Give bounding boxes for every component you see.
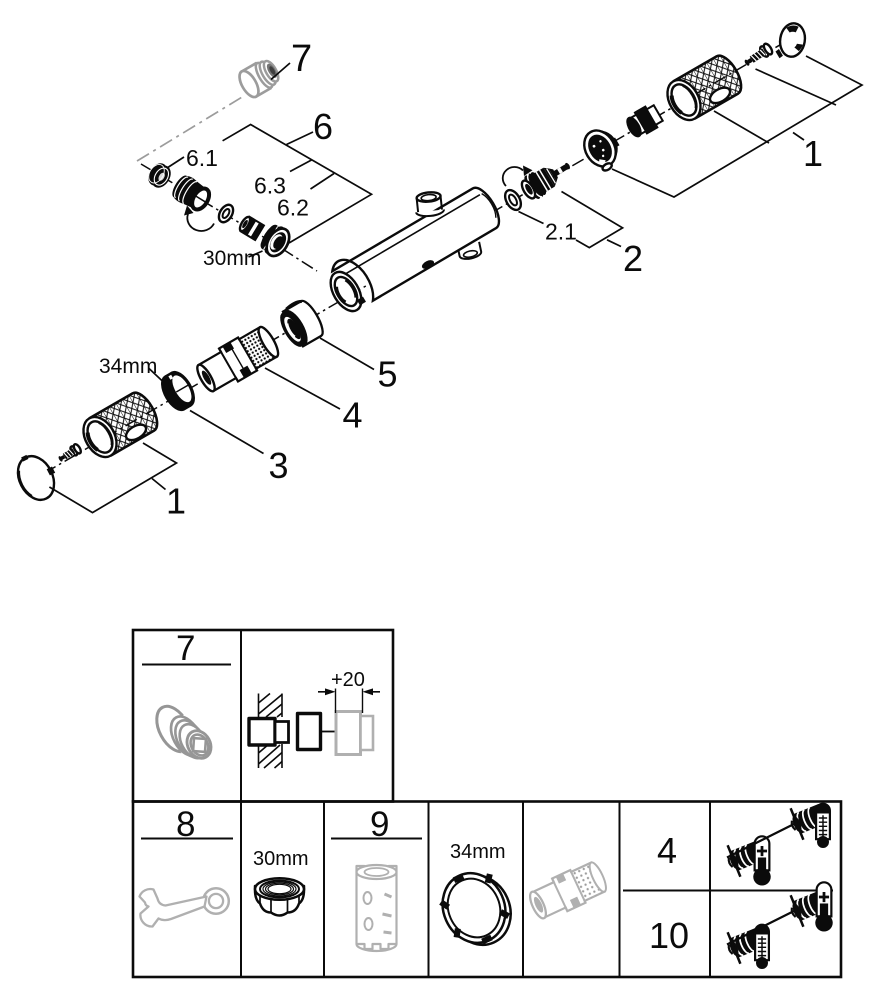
svg-text:7: 7	[291, 38, 312, 80]
svg-text:2: 2	[623, 238, 643, 279]
svg-text:34mm: 34mm	[450, 841, 506, 863]
svg-text:4: 4	[657, 830, 677, 871]
svg-text:1: 1	[166, 481, 186, 522]
svg-text:1: 1	[803, 133, 823, 174]
svg-text:34mm: 34mm	[99, 355, 157, 378]
svg-text:6.1: 6.1	[186, 145, 218, 171]
svg-text:10: 10	[649, 915, 689, 956]
svg-text:7: 7	[176, 629, 195, 668]
svg-text:6.2: 6.2	[277, 195, 309, 221]
svg-text:30mm: 30mm	[253, 848, 309, 870]
svg-text:4: 4	[343, 395, 363, 436]
svg-text:2.1: 2.1	[545, 219, 577, 245]
svg-text:30mm: 30mm	[203, 247, 261, 270]
svg-text:+20: +20	[331, 669, 365, 691]
svg-text:3: 3	[269, 445, 289, 486]
svg-text:5: 5	[378, 354, 398, 395]
svg-text:6: 6	[313, 106, 333, 147]
